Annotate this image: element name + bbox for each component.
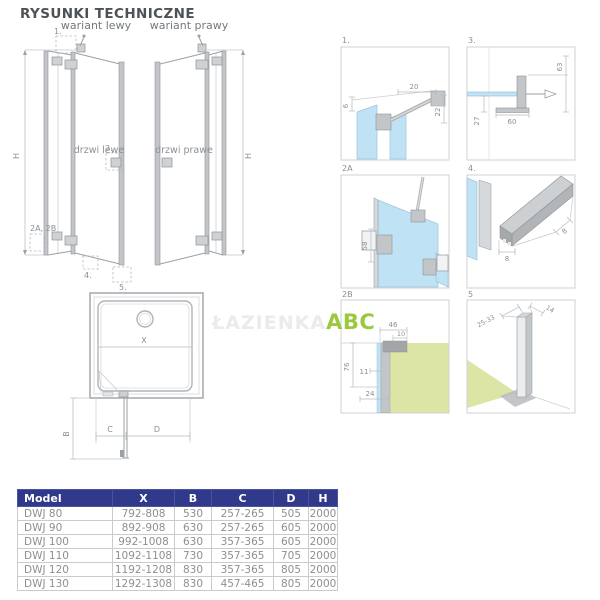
technical-drawings-page: RYSUNKI TECHNICZNE wariant lewy H: [0, 0, 600, 600]
table-row: DWJ 100 992-1008 630 357-365 605 2000: [18, 535, 338, 549]
detail-3: 3. 63 27 60: [467, 36, 575, 160]
cell-x: 792-808: [113, 507, 175, 521]
cell-b: 830: [175, 577, 212, 591]
detail-1: 1. 20 6 22: [341, 36, 449, 160]
callout-label-4: 4.: [84, 271, 92, 280]
detail-4-label: 4.: [468, 164, 476, 173]
column-header-c: C: [212, 490, 274, 507]
cell-d: 805: [274, 577, 309, 591]
cell-b: 630: [175, 535, 212, 549]
detail-2a-dim-left: 58: [361, 242, 369, 251]
cell-h: 2000: [309, 577, 338, 591]
cell-d: 605: [274, 535, 309, 549]
cell-x: 1092-1108: [113, 549, 175, 563]
cell-model: DWJ 120: [18, 563, 113, 577]
detail-1-dim-left: 6: [342, 103, 350, 108]
detail-2b-dim-top-inner: 10: [397, 330, 405, 338]
column-header-b: B: [175, 490, 212, 507]
cell-c: 257-265: [212, 507, 274, 521]
tray-b-label: B: [62, 431, 71, 437]
cell-h: 2000: [309, 535, 338, 549]
callout-box-1: [56, 36, 76, 53]
door-handle-top-view: [120, 450, 124, 457]
left-door-label: drzwi lewe: [74, 145, 125, 156]
table-row: DWJ 110 1092-1108 730 357-365 705 2000: [18, 549, 338, 563]
table-row: DWJ 130 1292-1308 830 457-465 805 2000: [18, 577, 338, 591]
cell-h: 2000: [309, 521, 338, 535]
table-header-row: Model X B C D H: [18, 490, 338, 507]
right-variant-diagram: wariant prawy H drzwi prawe: [150, 19, 253, 265]
right-variant-label: wariant prawy: [150, 19, 229, 32]
cell-b: 830: [175, 563, 212, 577]
detail-5: 5 25-33 14: [467, 290, 575, 413]
column-header-model: Model: [18, 490, 113, 507]
tray-width-label: X: [141, 336, 147, 345]
detail-4-dim-bottom: 8: [505, 255, 509, 263]
cell-c: 357-365: [212, 563, 274, 577]
detail-3-dim-left: 27: [473, 117, 481, 126]
callout-label-2ab: 2A, 2B: [30, 224, 56, 233]
cell-model: DWJ 100: [18, 535, 113, 549]
cell-h: 2000: [309, 563, 338, 577]
left-variant-label: wariant lewy: [61, 19, 132, 32]
detail-3-dim-right: 63: [556, 63, 564, 72]
callout-label-5: 5.: [119, 283, 127, 292]
tray-top-view: X B C D: [62, 293, 203, 459]
right-door-label: drzwi prawe: [155, 145, 213, 156]
cell-d: 505: [274, 507, 309, 521]
detail-4: 4. 8 8: [467, 164, 575, 288]
right-height-label: H: [244, 153, 253, 159]
tray-d-label: D: [154, 425, 160, 434]
table-row: DWJ 80 792-808 530 257-265 505 2000: [18, 507, 338, 521]
cell-c: 257-265: [212, 521, 274, 535]
cell-d: 605: [274, 521, 309, 535]
column-header-x: X: [113, 490, 175, 507]
cell-c: 357-365: [212, 535, 274, 549]
detail-1-label: 1.: [342, 36, 350, 45]
drawings-canvas: wariant lewy H: [0, 0, 600, 486]
cell-b: 630: [175, 521, 212, 535]
spec-table: Model X B C D H DWJ 80 792-808 530 257-2…: [17, 489, 338, 591]
tray-c-label: C: [107, 425, 113, 434]
detail-1-dim-top: 20: [410, 83, 419, 91]
detail-2a-label: 2A: [342, 164, 353, 173]
table-row: DWJ 120 1192-1208 830 357-365 805 2000: [18, 563, 338, 577]
callout-box-5: [113, 267, 131, 282]
cell-c: 357-365: [212, 549, 274, 563]
cell-x: 892-908: [113, 521, 175, 535]
detail-1-dim-right: 22: [434, 108, 442, 117]
cell-d: 705: [274, 549, 309, 563]
table-row: DWJ 90 892-908 630 257-265 605 2000: [18, 521, 338, 535]
cell-b: 530: [175, 507, 212, 521]
cell-h: 2000: [309, 507, 338, 521]
cell-model: DWJ 80: [18, 507, 113, 521]
callout-label-1: 1.: [54, 27, 62, 36]
cell-h: 2000: [309, 549, 338, 563]
detail-3-dim-bottom: 60: [508, 118, 517, 126]
cell-x: 1292-1308: [113, 577, 175, 591]
detail-2b-label: 2B: [342, 290, 353, 299]
detail-2b: 2B 46 10 76 11: [341, 290, 449, 413]
detail-2b-dim-top: 46: [389, 321, 398, 329]
left-variant-diagram: wariant lewy H: [12, 19, 132, 292]
column-header-h: H: [309, 490, 338, 507]
detail-2b-dim-left: 76: [343, 362, 351, 371]
detail-5-label: 5: [468, 290, 473, 299]
detail-3-label: 3.: [468, 36, 476, 45]
cell-model: DWJ 110: [18, 549, 113, 563]
cell-d: 805: [274, 563, 309, 577]
cell-x: 1192-1208: [113, 563, 175, 577]
detail-2a: 2A 58: [341, 164, 449, 288]
cell-x: 992-1008: [113, 535, 175, 549]
left-height-label: H: [12, 153, 21, 159]
detail-2b-dim-mid: 11: [360, 368, 369, 376]
cell-model: DWJ 130: [18, 577, 113, 591]
column-header-d: D: [274, 490, 309, 507]
cell-model: DWJ 90: [18, 521, 113, 535]
detail-2b-dim-bottom: 24: [366, 390, 375, 398]
cell-c: 457-465: [212, 577, 274, 591]
callout-box-2ab: [30, 234, 45, 251]
cell-b: 730: [175, 549, 212, 563]
